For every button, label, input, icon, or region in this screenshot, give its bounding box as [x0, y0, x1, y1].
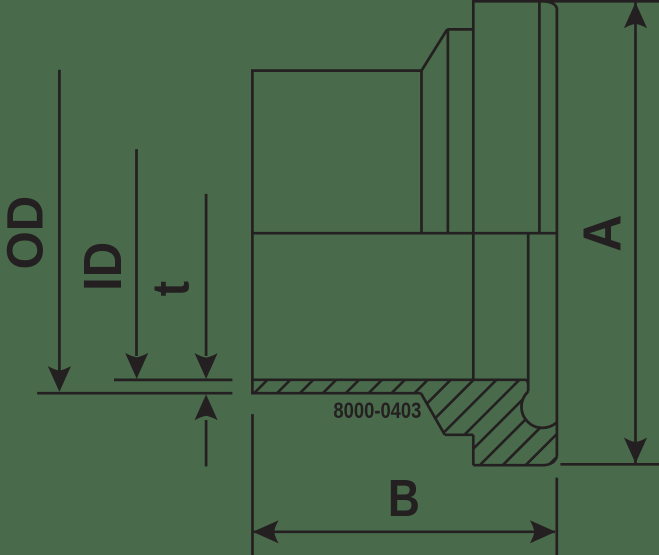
svg-text:t: t	[142, 281, 200, 296]
svg-text:ID: ID	[72, 242, 133, 291]
svg-text:8000-0403: 8000-0403	[333, 398, 421, 423]
svg-text:A: A	[573, 215, 633, 252]
svg-text:B: B	[388, 471, 420, 528]
svg-text:OD: OD	[0, 196, 54, 270]
